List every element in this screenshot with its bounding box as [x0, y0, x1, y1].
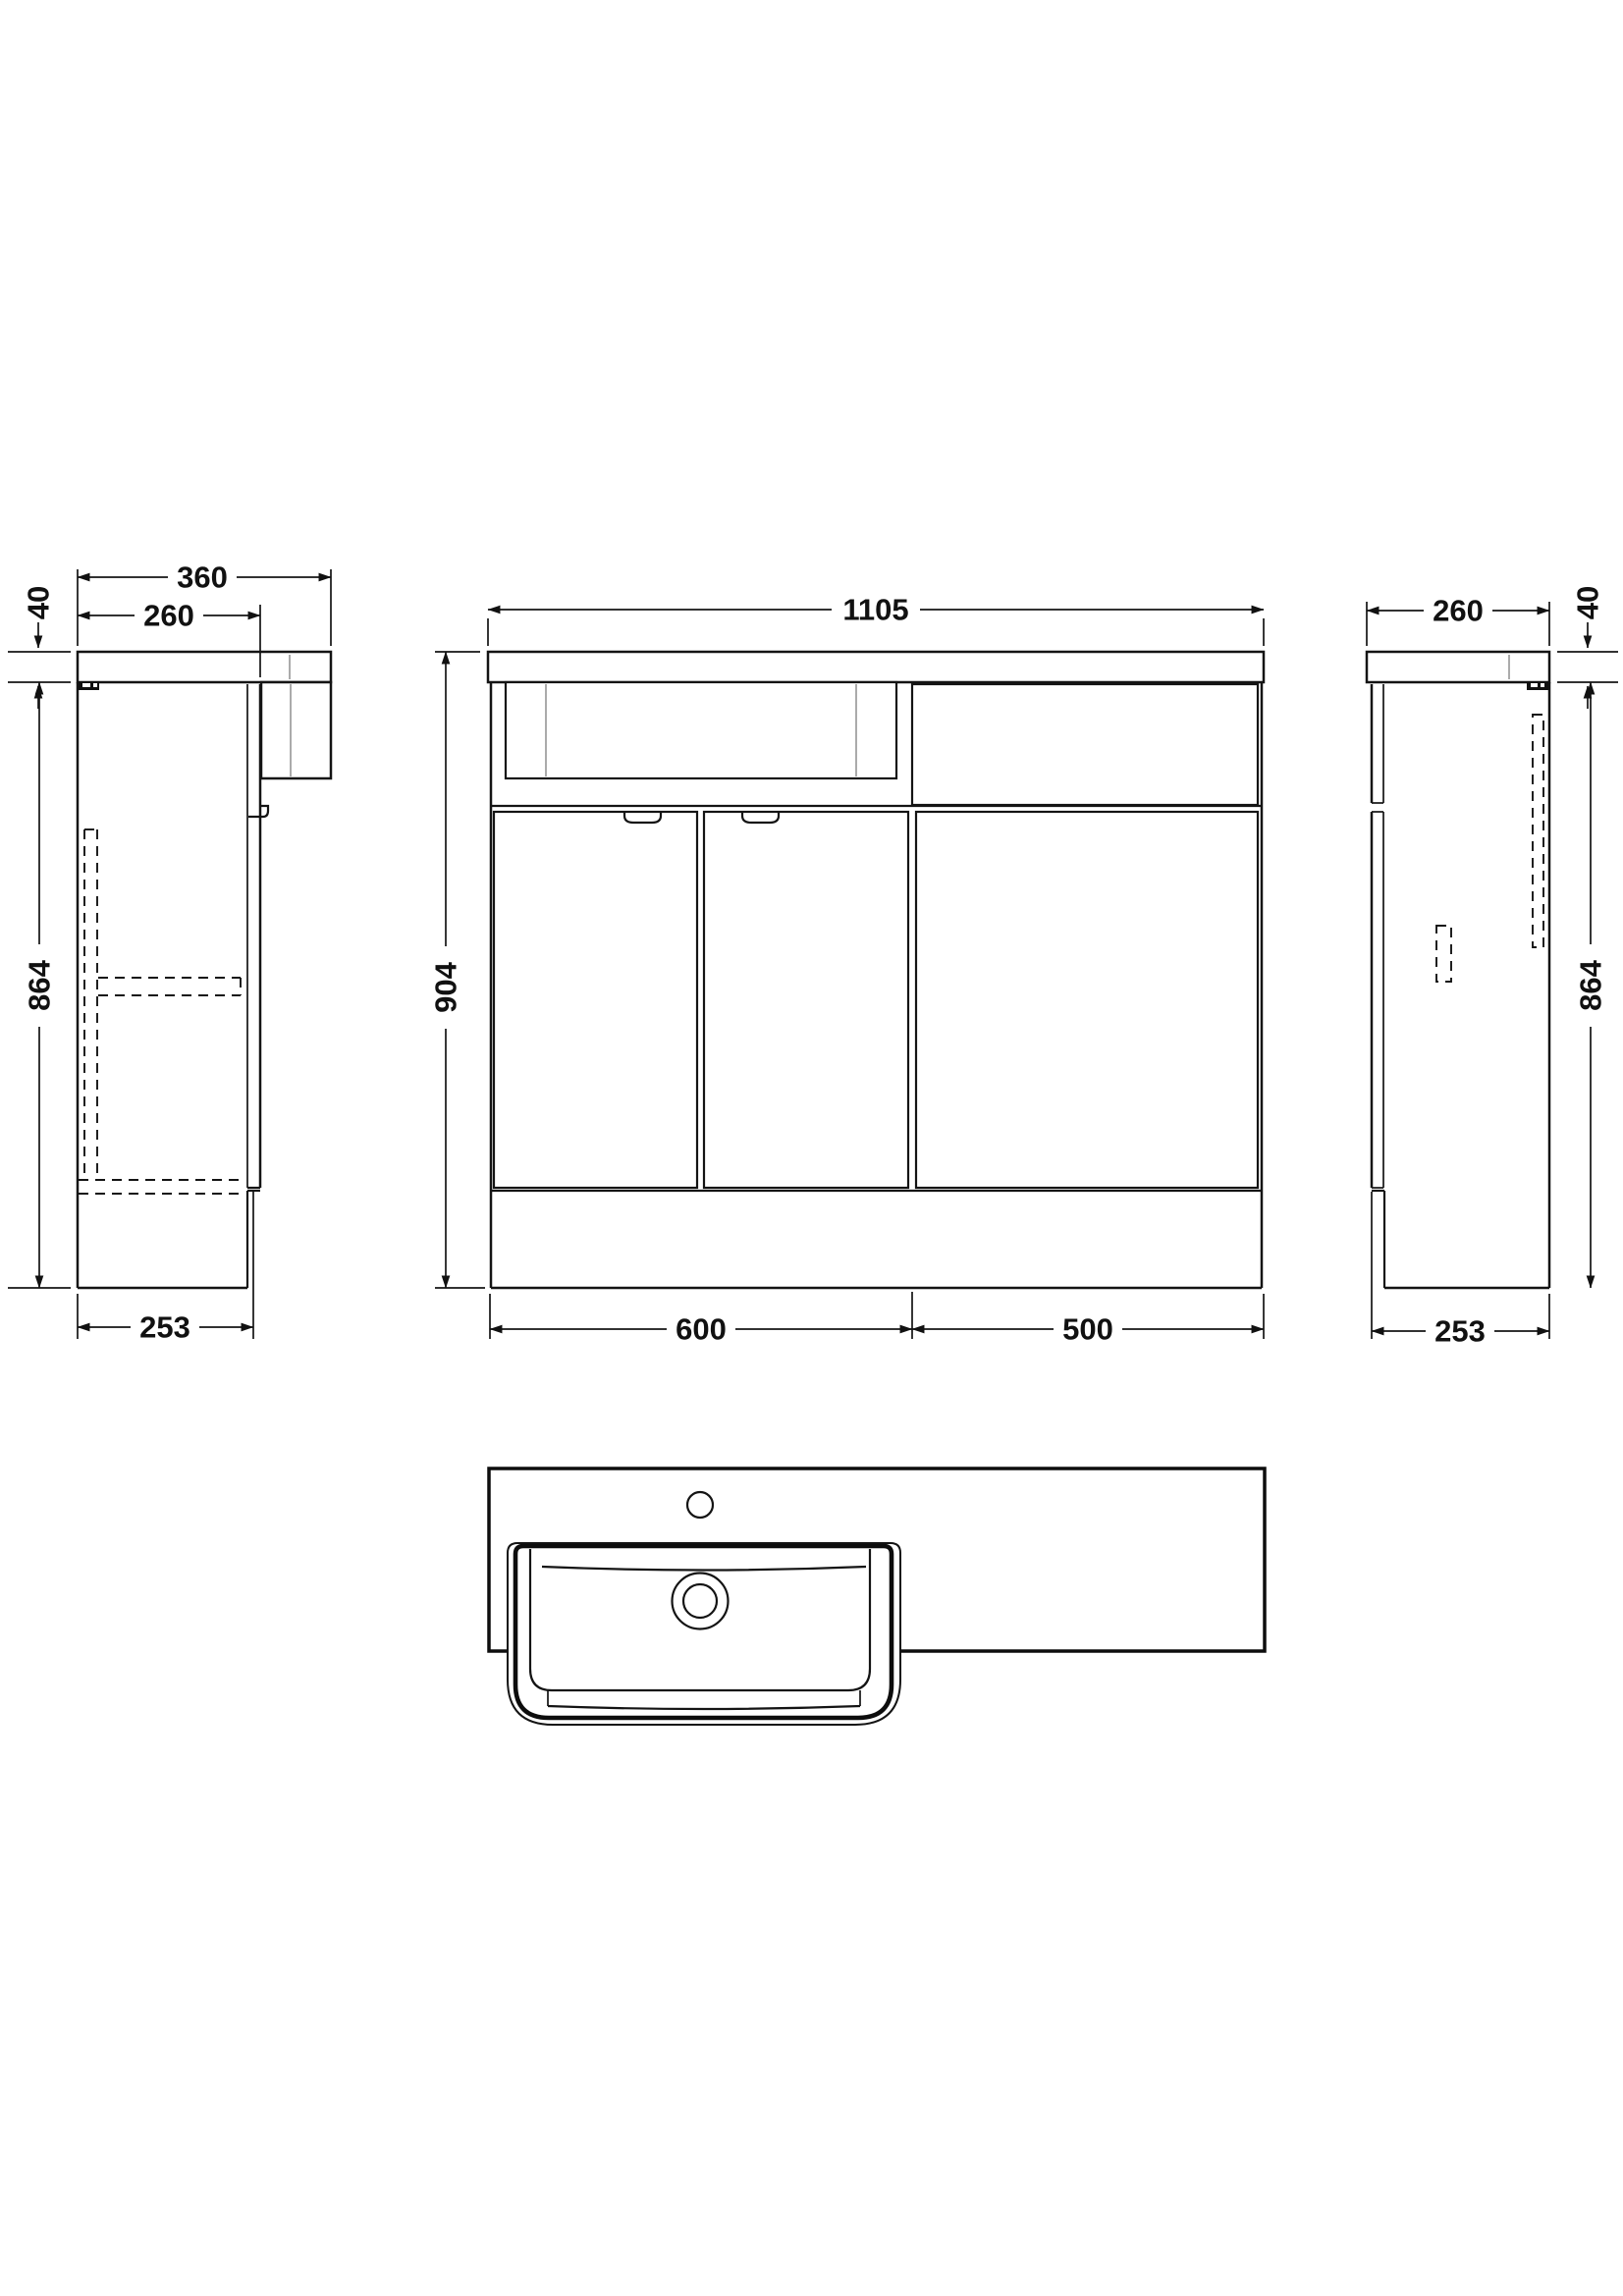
left-dim-360: 360: [78, 561, 331, 647]
left-hidden-shelf: [98, 978, 241, 995]
right-wall-bracket-slot: [1531, 683, 1538, 687]
front-view: 1105 904 600 500: [429, 593, 1265, 1347]
dim-worktop-depth-label: 260: [1433, 594, 1484, 628]
left-basin-profile: [261, 682, 331, 778]
left-wall-bracket-slot2: [93, 683, 97, 687]
left-dim-253: 253: [78, 1192, 253, 1345]
plan-view: [489, 1468, 1265, 1725]
side-view-right: 260 40 864 253: [1367, 586, 1618, 1349]
right-worktop-profile: [1367, 652, 1549, 682]
front-handle-right: [742, 813, 779, 823]
left-handle-profile: [248, 806, 268, 817]
dim-wc-width-label: 500: [1062, 1312, 1113, 1347]
dim-worktop-thickness-right-label: 40: [1571, 586, 1605, 619]
dim-cabinet-height-right-label: 864: [1574, 959, 1608, 1010]
front-handle-left: [624, 813, 661, 823]
dim-total-depth-label: 360: [177, 561, 228, 595]
left-dim-864: 864: [8, 682, 71, 1288]
right-hidden-bracket: [1436, 926, 1451, 982]
technical-drawing: 360 260 40 864 253: [0, 0, 1623, 2296]
left-hidden-back-panel: [84, 829, 97, 1180]
front-dim-600: 600: [490, 1292, 912, 1347]
left-worktop-profile: [78, 652, 331, 682]
dim-worktop-thickness-label: 40: [22, 586, 56, 619]
side-view-left: 360 260 40 864 253: [8, 561, 331, 1345]
left-wall-bracket-slot: [82, 683, 90, 687]
dim-overall-width-label: 1105: [842, 593, 908, 627]
dim-cabinet-height-label: 864: [23, 959, 57, 1010]
front-dim-904: 904: [429, 652, 486, 1288]
right-dim-253: 253: [1372, 1192, 1549, 1349]
front-door-left: [494, 812, 697, 1188]
front-worktop: [488, 652, 1264, 682]
front-wc-panel: [916, 812, 1258, 1188]
drawing-sheet: 360 260 40 864 253: [0, 0, 1623, 2296]
dim-base-depth-right-label: 253: [1434, 1314, 1486, 1349]
right-hidden-cistern-pipe: [1533, 715, 1543, 947]
right-dim-864: 864: [1574, 682, 1608, 1288]
front-basin-recess: [506, 682, 896, 778]
dim-cabinet-depth-label: 260: [143, 599, 194, 633]
right-dim-260: 260: [1367, 594, 1549, 647]
right-panel-edge: [1372, 684, 1383, 1188]
dim-base-depth-label: 253: [139, 1310, 190, 1345]
front-dim-500: 500: [912, 1294, 1264, 1347]
left-hidden-base-shelf: [79, 1180, 242, 1194]
front-door-right: [704, 812, 908, 1188]
right-wall-bracket-slot2: [1541, 683, 1544, 687]
dim-vanity-width-label: 600: [676, 1312, 727, 1347]
dim-overall-height-label: 904: [429, 961, 463, 1012]
plan-tap-hole: [687, 1492, 713, 1518]
right-dim-40: 40: [1557, 586, 1618, 709]
front-dim-1105: 1105: [488, 593, 1264, 647]
front-wc-top-panel: [912, 684, 1258, 805]
